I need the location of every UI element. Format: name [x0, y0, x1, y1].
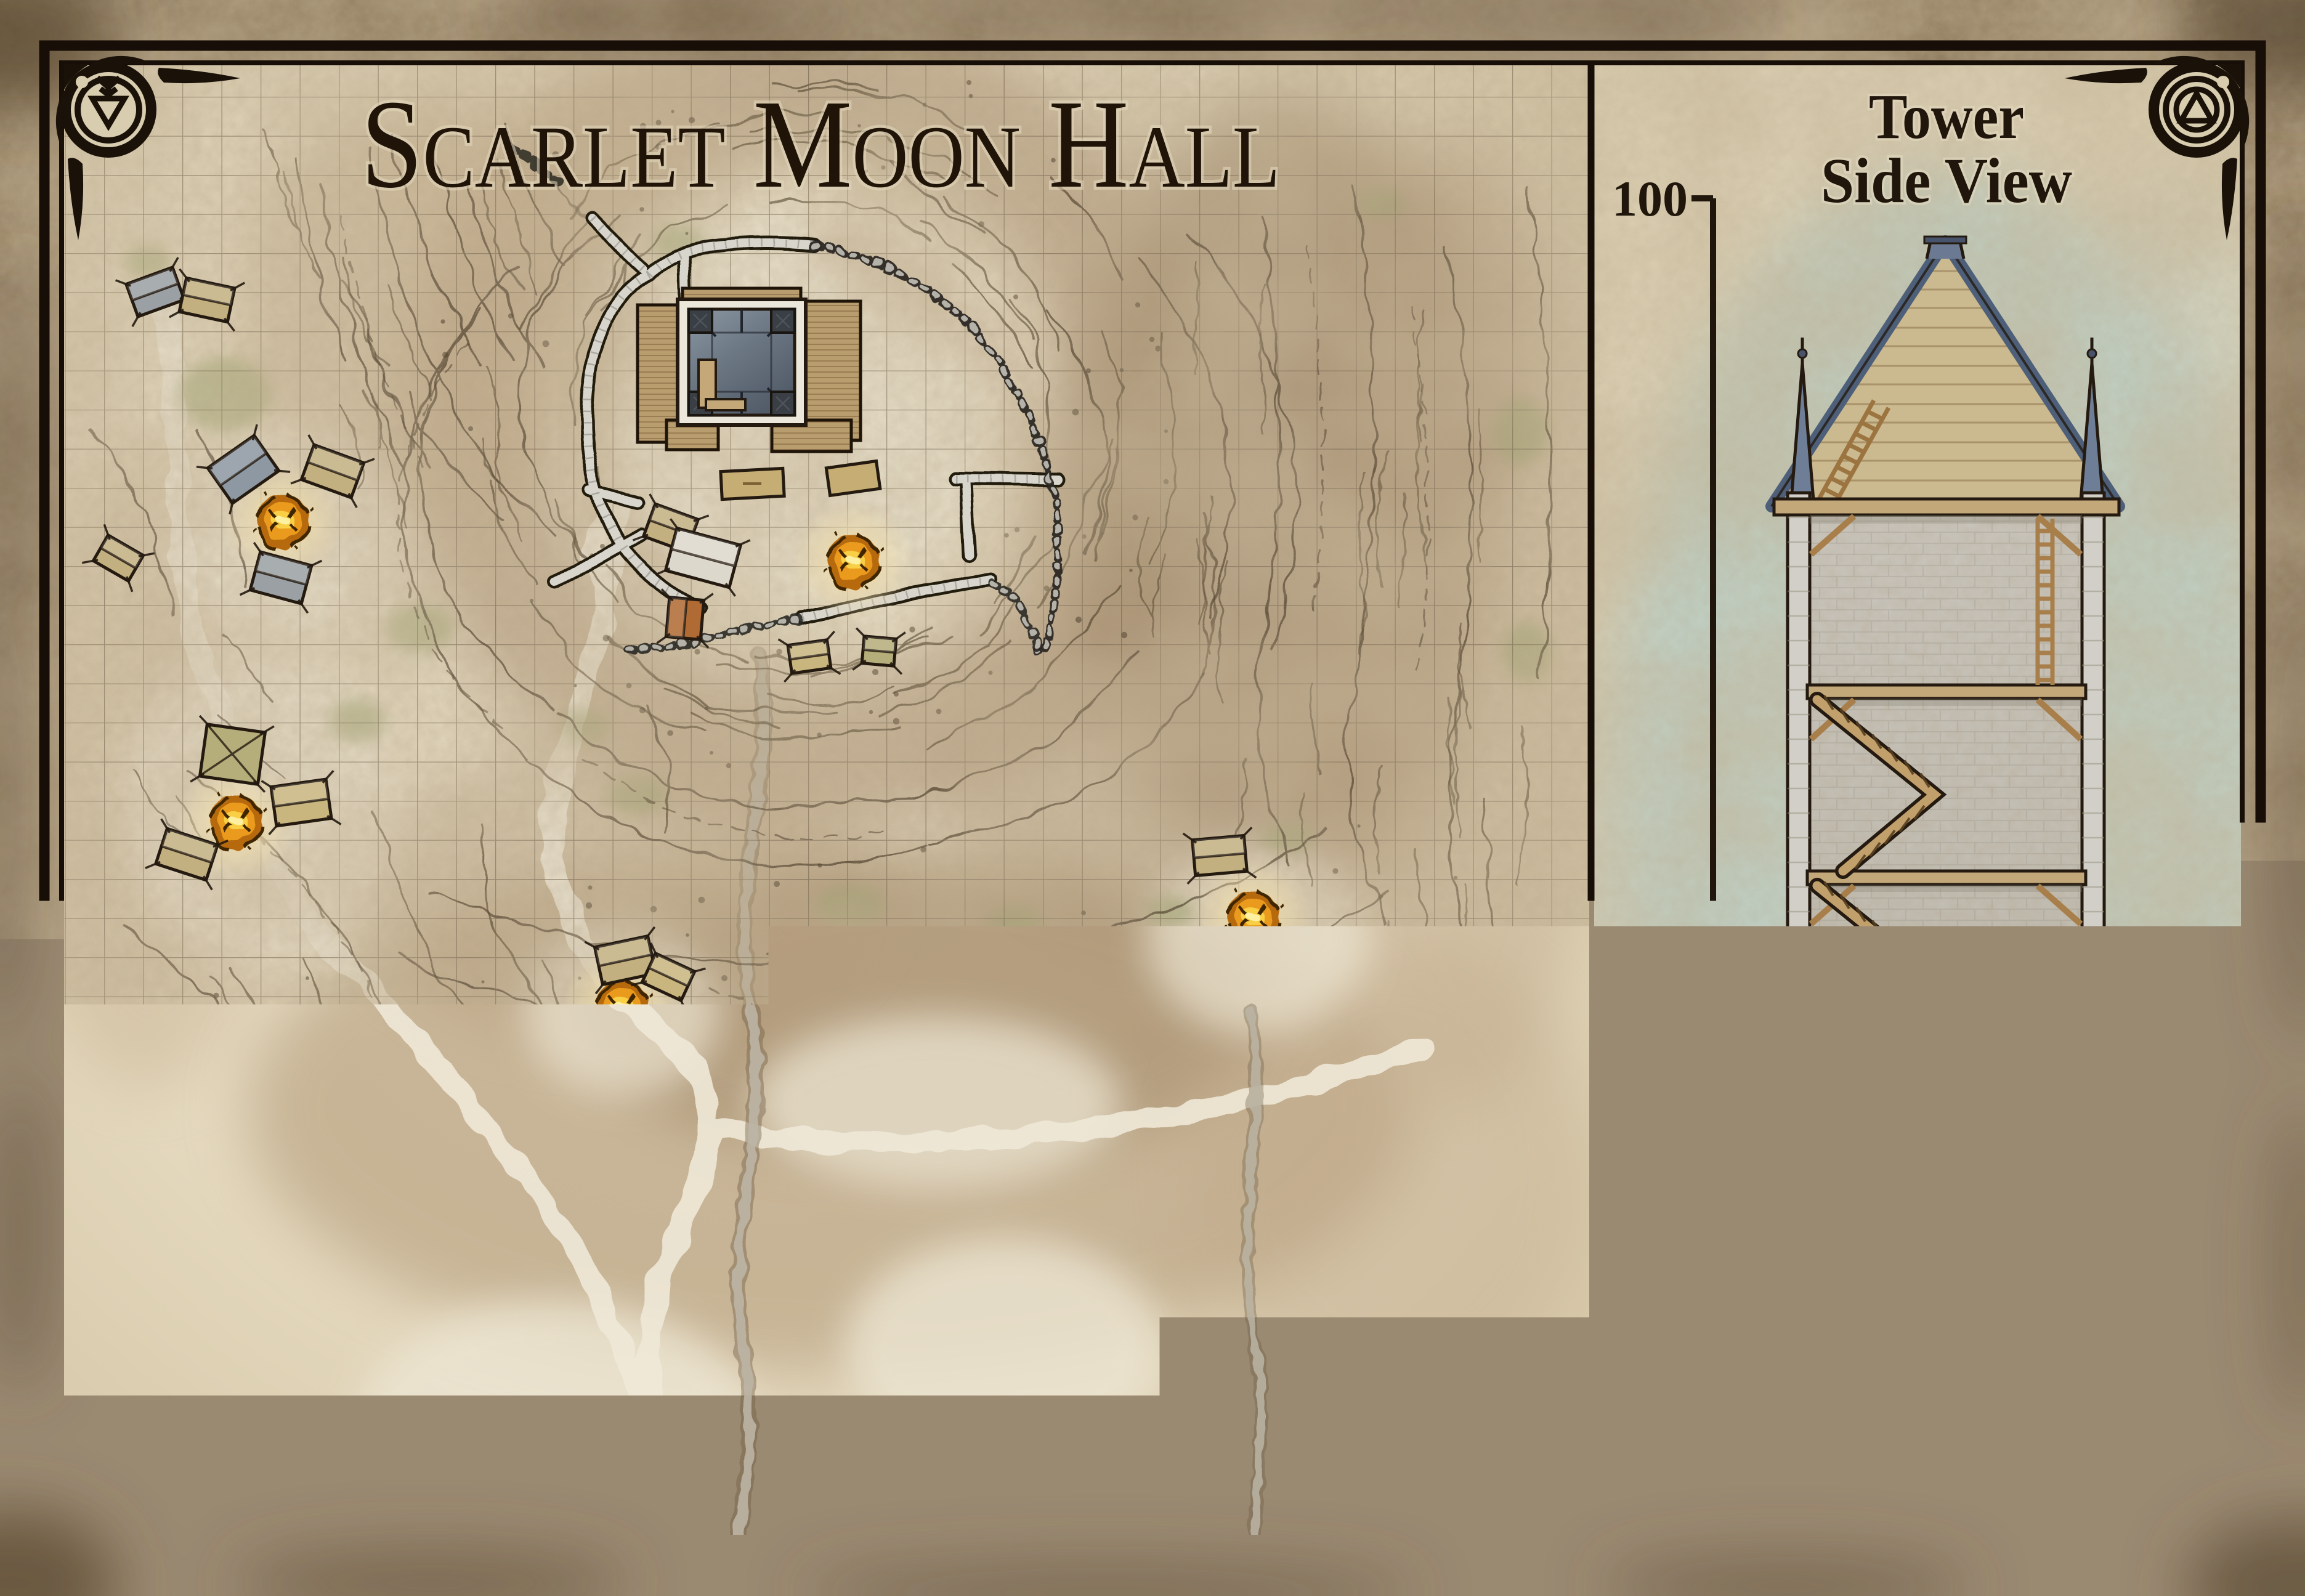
- svg-text:Tower: Tower: [1869, 81, 2024, 152]
- svg-text:E: E: [342, 1195, 386, 1267]
- svg-text:15: 15: [1637, 1214, 1688, 1270]
- svg-text:5: 5: [1663, 1336, 1688, 1392]
- svg-text:30: 30: [2068, 1461, 2118, 1517]
- svg-text:W: W: [153, 1195, 219, 1267]
- svg-text:100: 100: [1612, 171, 1688, 227]
- svg-text:Scarlet Moon Hall: Scarlet Moon Hall: [361, 73, 1280, 214]
- svg-text:5: 5: [1785, 1461, 1810, 1517]
- svg-text:N: N: [247, 1066, 313, 1167]
- svg-text:Side View: Side View: [1821, 145, 2072, 216]
- svg-text:1 square = 10 feet: 1 square = 10 feet: [1210, 1489, 1520, 1536]
- svg-text:feet: feet: [1631, 1440, 1712, 1497]
- svg-text:30: 30: [1637, 1031, 1688, 1087]
- svg-text:15: 15: [1893, 1461, 1943, 1517]
- svg-text:0: 0: [1726, 1461, 1751, 1517]
